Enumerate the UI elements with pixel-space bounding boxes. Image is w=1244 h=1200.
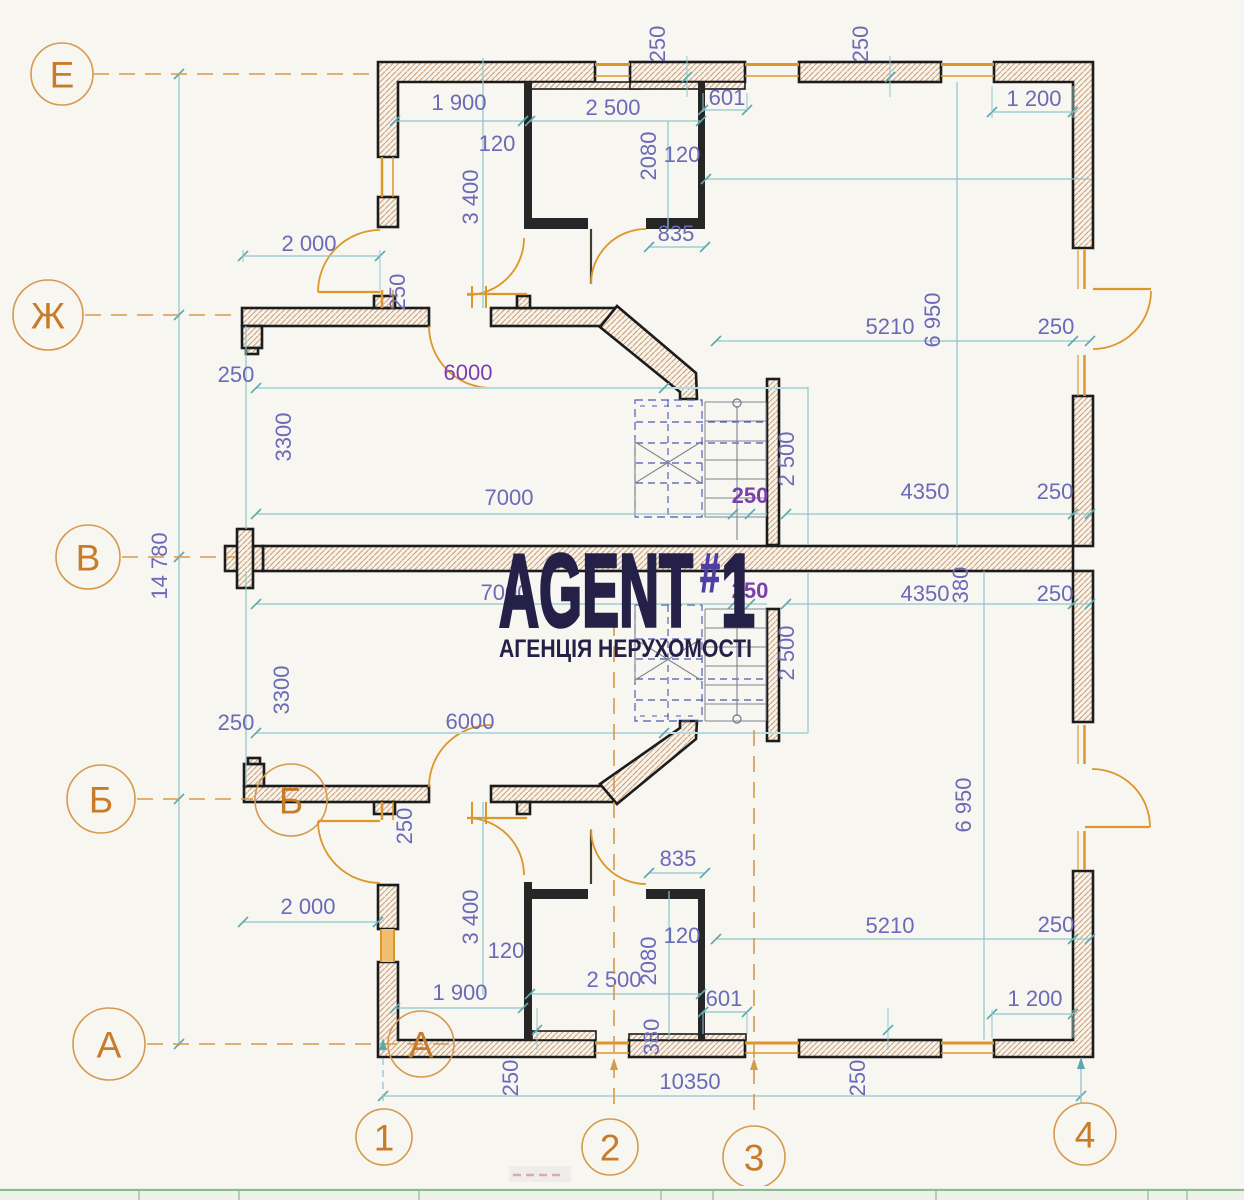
svg-text:3 400: 3 400 [458,169,483,224]
svg-text:250: 250 [1037,479,1074,504]
svg-text:250: 250 [1038,314,1075,339]
svg-text:6000: 6000 [446,709,495,734]
svg-text:4: 4 [1075,1114,1096,1155]
svg-text:250: 250 [385,274,410,311]
svg-text:6000: 6000 [444,360,493,385]
svg-text:120: 120 [488,938,525,963]
svg-text:1 200: 1 200 [1007,986,1062,1011]
svg-text:120: 120 [479,131,516,156]
svg-text:2 000: 2 000 [281,231,336,256]
svg-text:А: А [409,1024,434,1065]
svg-text:4350: 4350 [901,479,950,504]
svg-text:835: 835 [658,221,695,246]
svg-text:6 950: 6 950 [920,292,945,347]
svg-text:Б: Б [89,779,113,820]
svg-text:7000: 7000 [485,485,534,510]
svg-text:Е: Е [50,54,75,95]
svg-text:2 500: 2 500 [585,95,640,120]
svg-text:2080: 2080 [636,132,661,181]
svg-text:380: 380 [639,1019,664,1056]
svg-text:3300: 3300 [269,666,294,715]
svg-text:250: 250 [498,1060,523,1097]
svg-text:601: 601 [709,85,746,110]
svg-text:250: 250 [1038,912,1075,937]
svg-text:250: 250 [218,362,255,387]
svg-text:1 200: 1 200 [1006,86,1061,111]
svg-text:АГЕНЦІЯ НЕРУХОМОСТІ: АГЕНЦІЯ НЕРУХОМОСТІ [499,635,752,663]
svg-text:5210: 5210 [866,913,915,938]
svg-text:2 500: 2 500 [774,431,799,486]
svg-text:1 900: 1 900 [432,980,487,1005]
svg-text:250: 250 [848,26,873,63]
svg-text:AGENT: AGENT [499,533,693,648]
svg-text:250: 250 [645,26,670,63]
svg-text:#: # [700,541,720,604]
svg-text:А: А [97,1024,122,1065]
svg-text:1: 1 [721,533,755,648]
svg-text:6 950: 6 950 [951,777,976,832]
svg-text:14 780: 14 780 [147,532,172,599]
svg-text:2 500: 2 500 [774,625,799,680]
svg-text:2: 2 [600,1127,621,1168]
svg-text:601: 601 [706,986,743,1011]
svg-text:Б: Б [279,780,303,821]
svg-text:1: 1 [374,1117,395,1158]
svg-text:2 000: 2 000 [280,894,335,919]
svg-text:5210: 5210 [866,314,915,339]
svg-text:3: 3 [744,1137,765,1178]
svg-text:250: 250 [218,710,255,735]
svg-text:835: 835 [660,846,697,871]
svg-text:380: 380 [948,567,973,604]
svg-text:1 900: 1 900 [431,90,486,115]
svg-text:250: 250 [1037,581,1074,606]
svg-text:3300: 3300 [271,413,296,462]
svg-text:Ж: Ж [31,295,65,336]
svg-text:120: 120 [664,923,701,948]
svg-text:3 400: 3 400 [458,889,483,944]
svg-text:В: В [76,537,101,578]
svg-text:250: 250 [392,808,417,845]
svg-text:120: 120 [664,142,701,167]
svg-text:4350: 4350 [901,581,950,606]
svg-text:10350: 10350 [659,1069,720,1094]
svg-text:2080: 2080 [636,937,661,986]
svg-text:250: 250 [732,483,769,508]
svg-text:250: 250 [845,1060,870,1097]
